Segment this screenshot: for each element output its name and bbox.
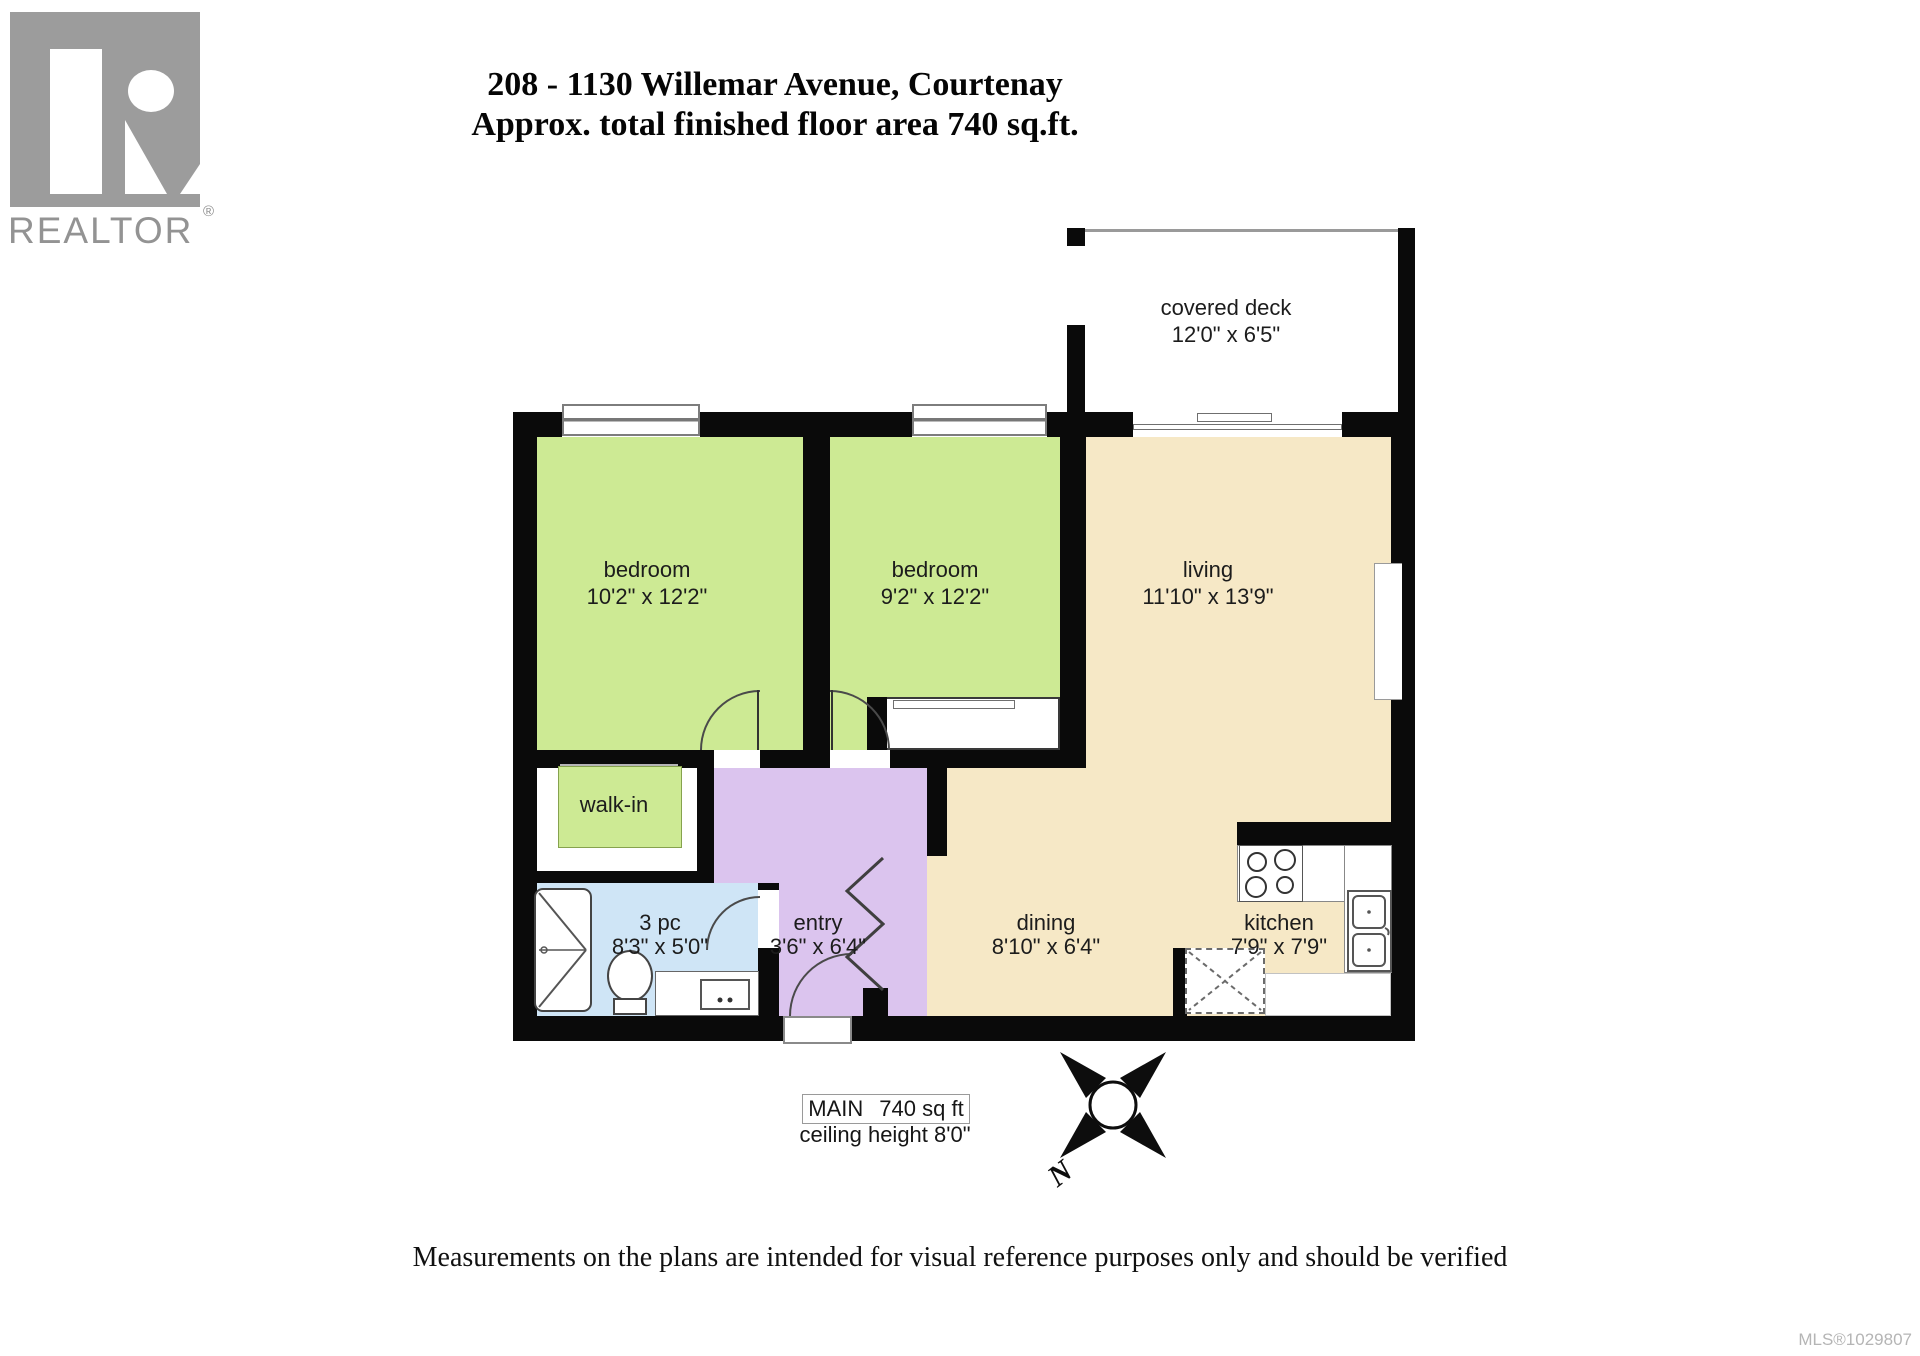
room-name: dining bbox=[1017, 910, 1076, 935]
registered-mark: ® bbox=[203, 203, 214, 220]
area-value: 740 sq ft bbox=[879, 1096, 963, 1122]
walkin-bath-wall bbox=[513, 871, 714, 883]
label-living: living 11'10" x 13'9" bbox=[1108, 556, 1308, 610]
label-kitchen: kitchen 7'9" x 7'9" bbox=[1189, 911, 1369, 959]
room-dims: 10'2" x 12'2" bbox=[547, 583, 747, 610]
level-label: MAIN bbox=[808, 1096, 863, 1122]
bedroom2-living-wall bbox=[1060, 437, 1086, 768]
open-area-floor bbox=[927, 768, 1391, 822]
label-entry: entry 3'6" x 6'4" bbox=[728, 911, 908, 959]
floor-plan-page: ® REALTOR 208 - 1130 Willemar Avenue, Co… bbox=[0, 0, 1920, 1356]
deck-top-edge bbox=[1085, 229, 1398, 232]
plan-title-line1: 208 - 1130 Willemar Avenue, Courtenay bbox=[335, 66, 1215, 104]
area-summary-box: MAIN 740 sq ft bbox=[802, 1094, 970, 1124]
bedroom-divider-wall bbox=[803, 437, 830, 751]
living-niche bbox=[1374, 563, 1402, 700]
label-bedroom2: bedroom 9'2" x 12'2" bbox=[835, 556, 1035, 610]
bedroom-bottom-wall-seg3 bbox=[890, 750, 1086, 768]
entry-closet-stub bbox=[863, 988, 888, 1016]
realtor-wordmark: REALTOR bbox=[8, 210, 193, 252]
room-name: bedroom bbox=[892, 557, 979, 582]
deck-right-wall bbox=[1398, 228, 1415, 413]
bedroom2-door-leaf bbox=[831, 690, 833, 750]
room-dims: 3'6" x 6'4" bbox=[728, 935, 908, 959]
label-walk-in: walk-in bbox=[554, 793, 674, 817]
kitchen-top-wall bbox=[1237, 822, 1415, 845]
room-name: bedroom bbox=[604, 557, 691, 582]
stove-icon bbox=[1239, 845, 1303, 902]
label-bath: 3 pc 8'3" x 5'0" bbox=[575, 911, 745, 959]
vanity-sink-icon bbox=[700, 979, 750, 1010]
room-dims: 8'3" x 5'0" bbox=[575, 935, 745, 959]
label-covered-deck: covered deck 12'0" x 6'5" bbox=[1105, 294, 1347, 348]
compass-north-label: N bbox=[1041, 1153, 1080, 1190]
patio-door-panel bbox=[1197, 413, 1272, 422]
room-name: living bbox=[1183, 557, 1233, 582]
room-name: walk-in bbox=[580, 792, 648, 817]
bottom-wall-seg2 bbox=[852, 1016, 1415, 1041]
top-wall-seg2 bbox=[700, 412, 912, 437]
realtor-r-icon bbox=[10, 12, 200, 207]
deck-post bbox=[1067, 228, 1085, 246]
deck-left-wall bbox=[1067, 325, 1085, 413]
bedroom-bottom-wall-seg2 bbox=[760, 750, 830, 768]
entry-dining-wall bbox=[927, 768, 947, 856]
realtor-logo bbox=[10, 12, 200, 207]
room-name: kitchen bbox=[1244, 910, 1314, 935]
patio-door-track bbox=[1133, 424, 1342, 430]
room-name: entry bbox=[794, 910, 843, 935]
room-dims: 11'10" x 13'9" bbox=[1108, 583, 1308, 610]
room-dims: 12'0" x 6'5" bbox=[1105, 321, 1347, 348]
bottom-wall-seg1 bbox=[513, 1016, 783, 1041]
disclaimer-text: Measurements on the plans are intended f… bbox=[10, 1242, 1910, 1274]
room-dims: 7'9" x 7'9" bbox=[1189, 935, 1369, 959]
room-dims: 8'10" x 6'4" bbox=[956, 935, 1136, 959]
walkin-entry-wall bbox=[697, 750, 714, 883]
room-dims: 9'2" x 12'2" bbox=[835, 583, 1035, 610]
plan-title-line2: Approx. total finished floor area 740 sq… bbox=[335, 106, 1215, 144]
bedroom1-door-leaf bbox=[757, 690, 759, 750]
ceiling-height-label: ceiling height 8'0" bbox=[735, 1122, 1035, 1148]
bedroom2-closet-door bbox=[893, 700, 1015, 709]
label-bedroom1: bedroom 10'2" x 12'2" bbox=[547, 556, 747, 610]
bedroom1-window bbox=[562, 404, 700, 436]
room-name: covered deck bbox=[1161, 295, 1292, 320]
mls-number: MLS®1029807 bbox=[1700, 1330, 1912, 1350]
entry-threshold bbox=[783, 1016, 852, 1044]
compass-icon: N bbox=[1038, 1040, 1188, 1190]
kitchen-lower-cabinet bbox=[1265, 973, 1391, 1016]
label-dining: dining 8'10" x 6'4" bbox=[956, 911, 1136, 959]
top-wall-seg3 bbox=[1047, 412, 1133, 437]
bedroom2-window bbox=[912, 404, 1047, 436]
room-name: 3 pc bbox=[639, 910, 681, 935]
right-wall bbox=[1391, 412, 1415, 1041]
toilet-base-icon bbox=[613, 998, 647, 1015]
